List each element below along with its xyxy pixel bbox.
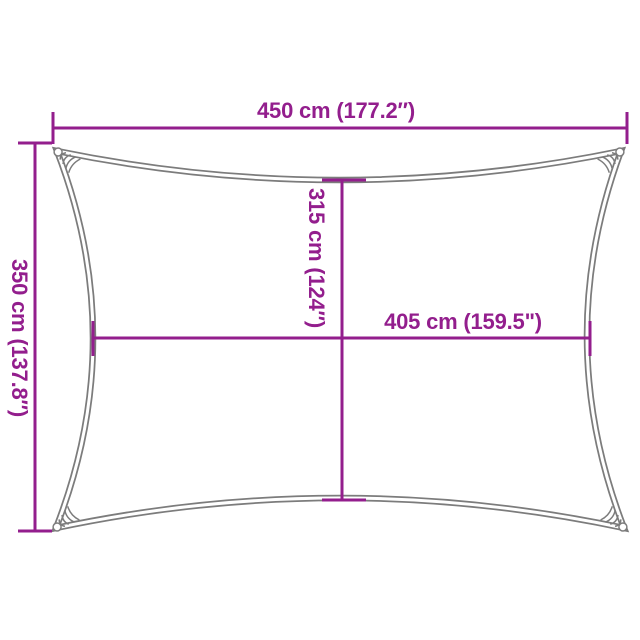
corner-ring-icon — [54, 148, 62, 156]
product-dimension-diagram: 450 cm (177.2″) 350 cm (137.8″) 315 cm (… — [0, 0, 640, 640]
dimension-label-top: 450 cm (177.2″) — [257, 100, 415, 122]
dimension-label-left: 350 cm (137.8″) — [8, 259, 30, 417]
corner-ring-icon — [616, 148, 624, 156]
dimension-label-middle-horizontal: 405 cm (159.5") — [384, 311, 542, 333]
corner-ring-icon — [53, 523, 61, 531]
dimension-label-middle-vertical: 315 cm (124″) — [305, 188, 327, 328]
corner-ring-icon — [619, 523, 627, 531]
